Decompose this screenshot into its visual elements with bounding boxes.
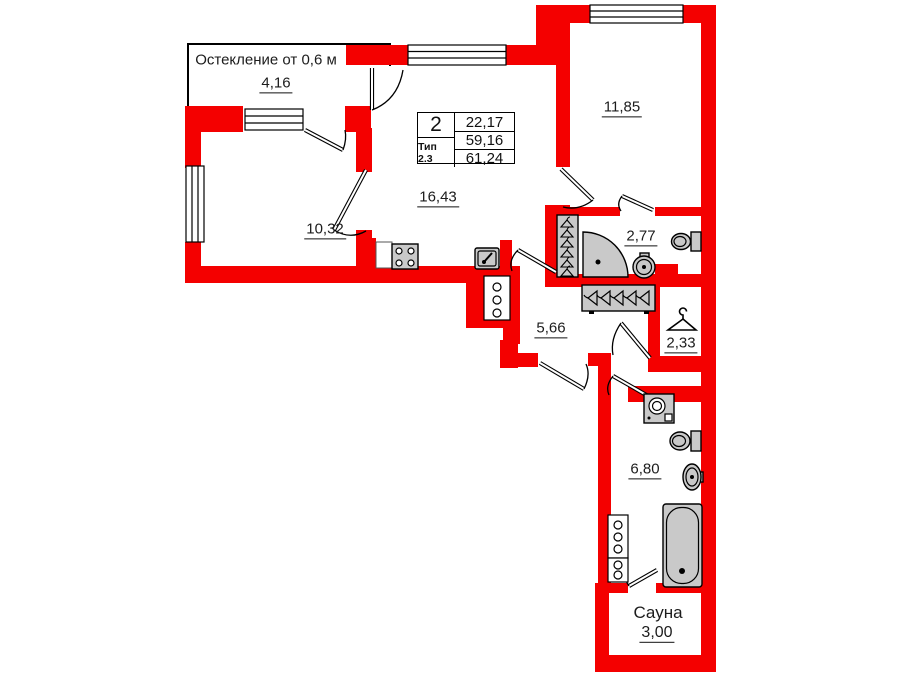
utility-riser-icon [484,276,510,320]
toilet-icon [670,431,701,451]
area-value: 59,16 [455,131,514,149]
wall-segment [598,353,611,397]
door-balcony-bedroom-left [305,130,346,150]
window-balcony-room [245,109,303,130]
apartment-info-box: 2 Тип 2.3 22,17 59,16 61,24 [417,112,515,164]
wall-niche [376,242,392,268]
room-label-wardrobe: 2,33 [664,334,697,351]
door-hallway-wardrobe [612,323,650,358]
washbasin-icon [633,253,655,278]
wall-segment [655,207,703,216]
wall-segment [655,264,678,275]
room-label-balcony: 4,16 [259,74,292,91]
wall-segment [648,356,703,372]
floorplan-canvas [0,0,900,675]
wall-segment [500,353,538,367]
door-balcony-living [372,68,403,110]
window-living-top [408,45,506,65]
rooms-count: 2 [418,113,454,138]
washbasin-icon [683,464,703,490]
clothes-hanger-icon [668,308,696,330]
door-hallway-corridor [540,363,588,389]
window-left-room [186,166,204,242]
wardrobe-hangers-icon [582,285,655,314]
washing-machine-icon [644,394,674,423]
wall-segment [185,128,201,168]
wall-segment [595,655,716,672]
room-name-sauna: Сауна [633,603,682,623]
door-bedroom-ensuite [619,196,653,211]
door-bathroom-sauna [625,566,657,586]
wall-segment [185,242,201,270]
floorplan: Остекление от 0,6 м 4,16 10,32 16,43 11,… [0,0,900,675]
wall-segment [556,23,570,167]
sink-icon [475,248,499,269]
corner-shower-icon [583,232,628,277]
wall-segment [500,240,512,268]
wall-segment [346,45,408,65]
glazing-note: Остекление от 0,6 м [195,51,337,68]
room-label-bedroom-left: 10,32 [304,220,346,237]
toilet-icon [672,232,702,251]
bathtub-icon [663,504,702,587]
closet-hangers-icon [557,215,578,277]
room-label-sauna: 3,00 [639,624,674,642]
apartment-type: Тип 2.3 [418,138,454,167]
room-label-bedroom-top: 11,85 [602,98,642,115]
utility-riser-icon [608,515,628,582]
living-area-value: 22,17 [455,113,514,131]
room-label-living-kitchen: 16,43 [417,188,459,205]
total-area-value: 61,24 [455,149,514,167]
room-label-bathroom-ensuite: 2,77 [624,227,657,244]
window-bedroom-top [590,5,683,23]
wall-segment [356,128,372,172]
wall-segment [701,5,716,667]
stove-icon [392,244,418,269]
room-label-bathroom-main: 6,80 [628,460,661,477]
wall-segment [360,238,376,268]
door-living-bedroom-top [561,169,593,208]
room-label-hallway: 5,66 [534,319,567,336]
